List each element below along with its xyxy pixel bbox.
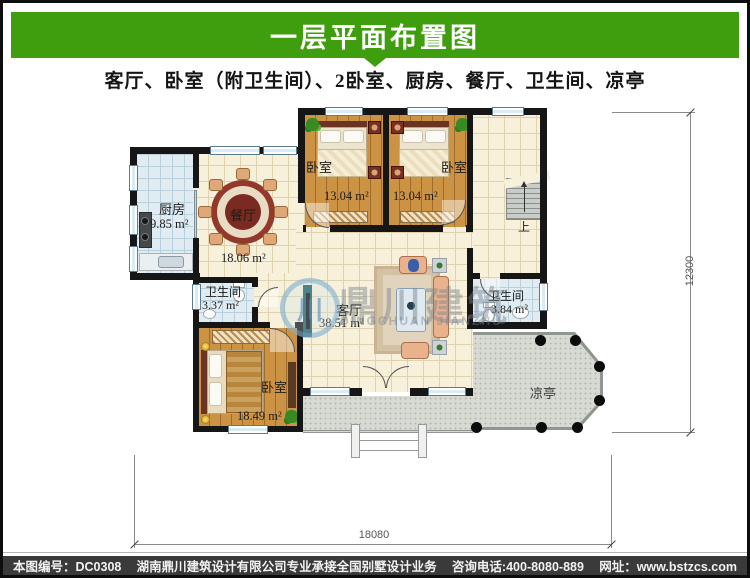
wall (193, 154, 199, 188)
floor-plan-poster: 一层平面布置图 客厅、卧室（附卫生间）、2卧室、厨房、餐厅、卫生间、凉亭 (0, 0, 750, 578)
pillow (209, 354, 222, 378)
wall (193, 238, 199, 273)
dim-ext-line (612, 112, 695, 113)
window (492, 107, 524, 116)
bath1-area: 3.37 m² (202, 298, 239, 313)
wall (297, 322, 303, 432)
page-title: 一层平面布置图 (270, 16, 480, 55)
kitchen-label: 厨房 (159, 199, 185, 218)
company-name: 湖南鼎川建筑设计有限公司专业承接全国别墅设计业务 (137, 556, 437, 575)
title-banner: 一层平面布置图 (11, 12, 739, 58)
bedroom-cabinet (288, 362, 296, 408)
nightstand (391, 166, 404, 179)
bedroom3-label: 卧室 (261, 377, 287, 396)
wall (467, 248, 473, 329)
bedroom1-label: 卧室 (306, 157, 332, 176)
side-table (432, 258, 447, 273)
stairs-up-label: 上 (518, 218, 530, 235)
dim-ext-line (611, 455, 612, 548)
plant-icon (306, 118, 319, 131)
dining-chair (263, 179, 277, 191)
dining-chair (263, 233, 277, 245)
bath2-area: 3.84 m² (491, 302, 528, 317)
wall (303, 388, 310, 396)
bedroom2-label: 卧室 (441, 157, 467, 176)
wall (350, 388, 362, 396)
wall (252, 277, 258, 287)
pavilion-label: 凉亭 (530, 383, 556, 402)
wall (193, 426, 228, 432)
stove-burner (141, 217, 149, 225)
living-area: 38.51 m² (319, 316, 364, 331)
entry-step (360, 440, 418, 441)
bedroom1-area: 13.04 m² (324, 189, 369, 204)
wall (252, 307, 258, 322)
window (210, 146, 260, 155)
nightstand (368, 121, 381, 134)
wall (298, 115, 305, 203)
entry-step (360, 430, 418, 431)
dim-width-value: 18080 (334, 529, 414, 541)
window (129, 165, 138, 191)
coffee-table (396, 288, 426, 332)
dining-chair (274, 206, 288, 218)
terrace-floor (303, 396, 473, 433)
wall (467, 273, 480, 279)
footer-divider (3, 552, 747, 553)
kitchen-sink (158, 256, 184, 268)
entry-steps-left-post (351, 424, 360, 458)
window (129, 246, 138, 272)
wall (500, 273, 547, 279)
dining-chair (209, 179, 223, 191)
wall (193, 322, 270, 328)
person-figure (408, 259, 419, 272)
wall (466, 388, 473, 396)
window (325, 107, 363, 116)
kitchen-area: 9.85 m² (150, 217, 188, 232)
bedside-lamp (201, 342, 210, 351)
window (263, 146, 297, 155)
side-table (432, 340, 447, 355)
tv (306, 293, 310, 329)
nightstand (391, 121, 404, 134)
column (594, 395, 605, 406)
wall (410, 388, 428, 396)
pillow (320, 130, 341, 143)
column (471, 422, 482, 433)
room-list-subtitle: 客厅、卧室（附卫生间）、2卧室、厨房、餐厅、卫生间、凉亭 (0, 66, 750, 93)
window (129, 205, 138, 235)
sofa-armchair (401, 342, 429, 359)
bedside-lamp (201, 415, 210, 424)
column (594, 361, 605, 372)
footer-bar: 本图编号：DC0308 湖南鼎川建筑设计有限公司专业承接全国别墅设计业务 咨询电… (3, 556, 747, 575)
column (536, 422, 547, 433)
entry-step (360, 450, 418, 451)
wall (383, 115, 389, 225)
window (539, 283, 548, 311)
stairs-up-arrow (524, 186, 525, 212)
wall (130, 273, 200, 280)
website-url: 网址：www.bstzcs.com (599, 556, 737, 575)
window (228, 425, 268, 434)
window (407, 107, 448, 116)
column (535, 335, 546, 346)
dining-chair (209, 233, 223, 245)
window (428, 387, 466, 396)
bedroom3-area: 18.49 m² (237, 409, 282, 424)
dim-ext-line (612, 432, 695, 433)
pillow (402, 130, 423, 143)
wall (330, 225, 443, 232)
dining-chair (198, 206, 212, 218)
wall (467, 115, 473, 225)
wall (466, 225, 473, 232)
window (192, 284, 201, 310)
nightstand (368, 166, 381, 179)
dim-line-width (134, 544, 612, 545)
drawing-code: 本图编号：DC0308 (13, 556, 121, 575)
column (570, 335, 581, 346)
pillow (425, 130, 446, 143)
dining-area: 18.06 m² (221, 251, 266, 266)
pillow (343, 130, 364, 143)
stove-burner (141, 233, 149, 241)
wall (303, 225, 306, 232)
kitchen-sliding-door (194, 190, 197, 238)
pillow (209, 382, 222, 406)
wall (467, 322, 547, 329)
dining-chair (236, 168, 250, 180)
wardrobe (212, 330, 270, 344)
sofa-long (433, 276, 449, 338)
column (572, 422, 583, 433)
bed-blanket (226, 351, 262, 413)
phone-number: 咨询电话:400-8080-889 (452, 556, 584, 575)
entry-steps-right-post (418, 424, 427, 458)
window (310, 387, 350, 396)
bedroom2-area: 13.04 m² (393, 189, 438, 204)
dim-height-value: 12300 (684, 241, 696, 301)
dim-ext-line (134, 455, 135, 548)
dining-label: 餐厅 (230, 205, 256, 224)
